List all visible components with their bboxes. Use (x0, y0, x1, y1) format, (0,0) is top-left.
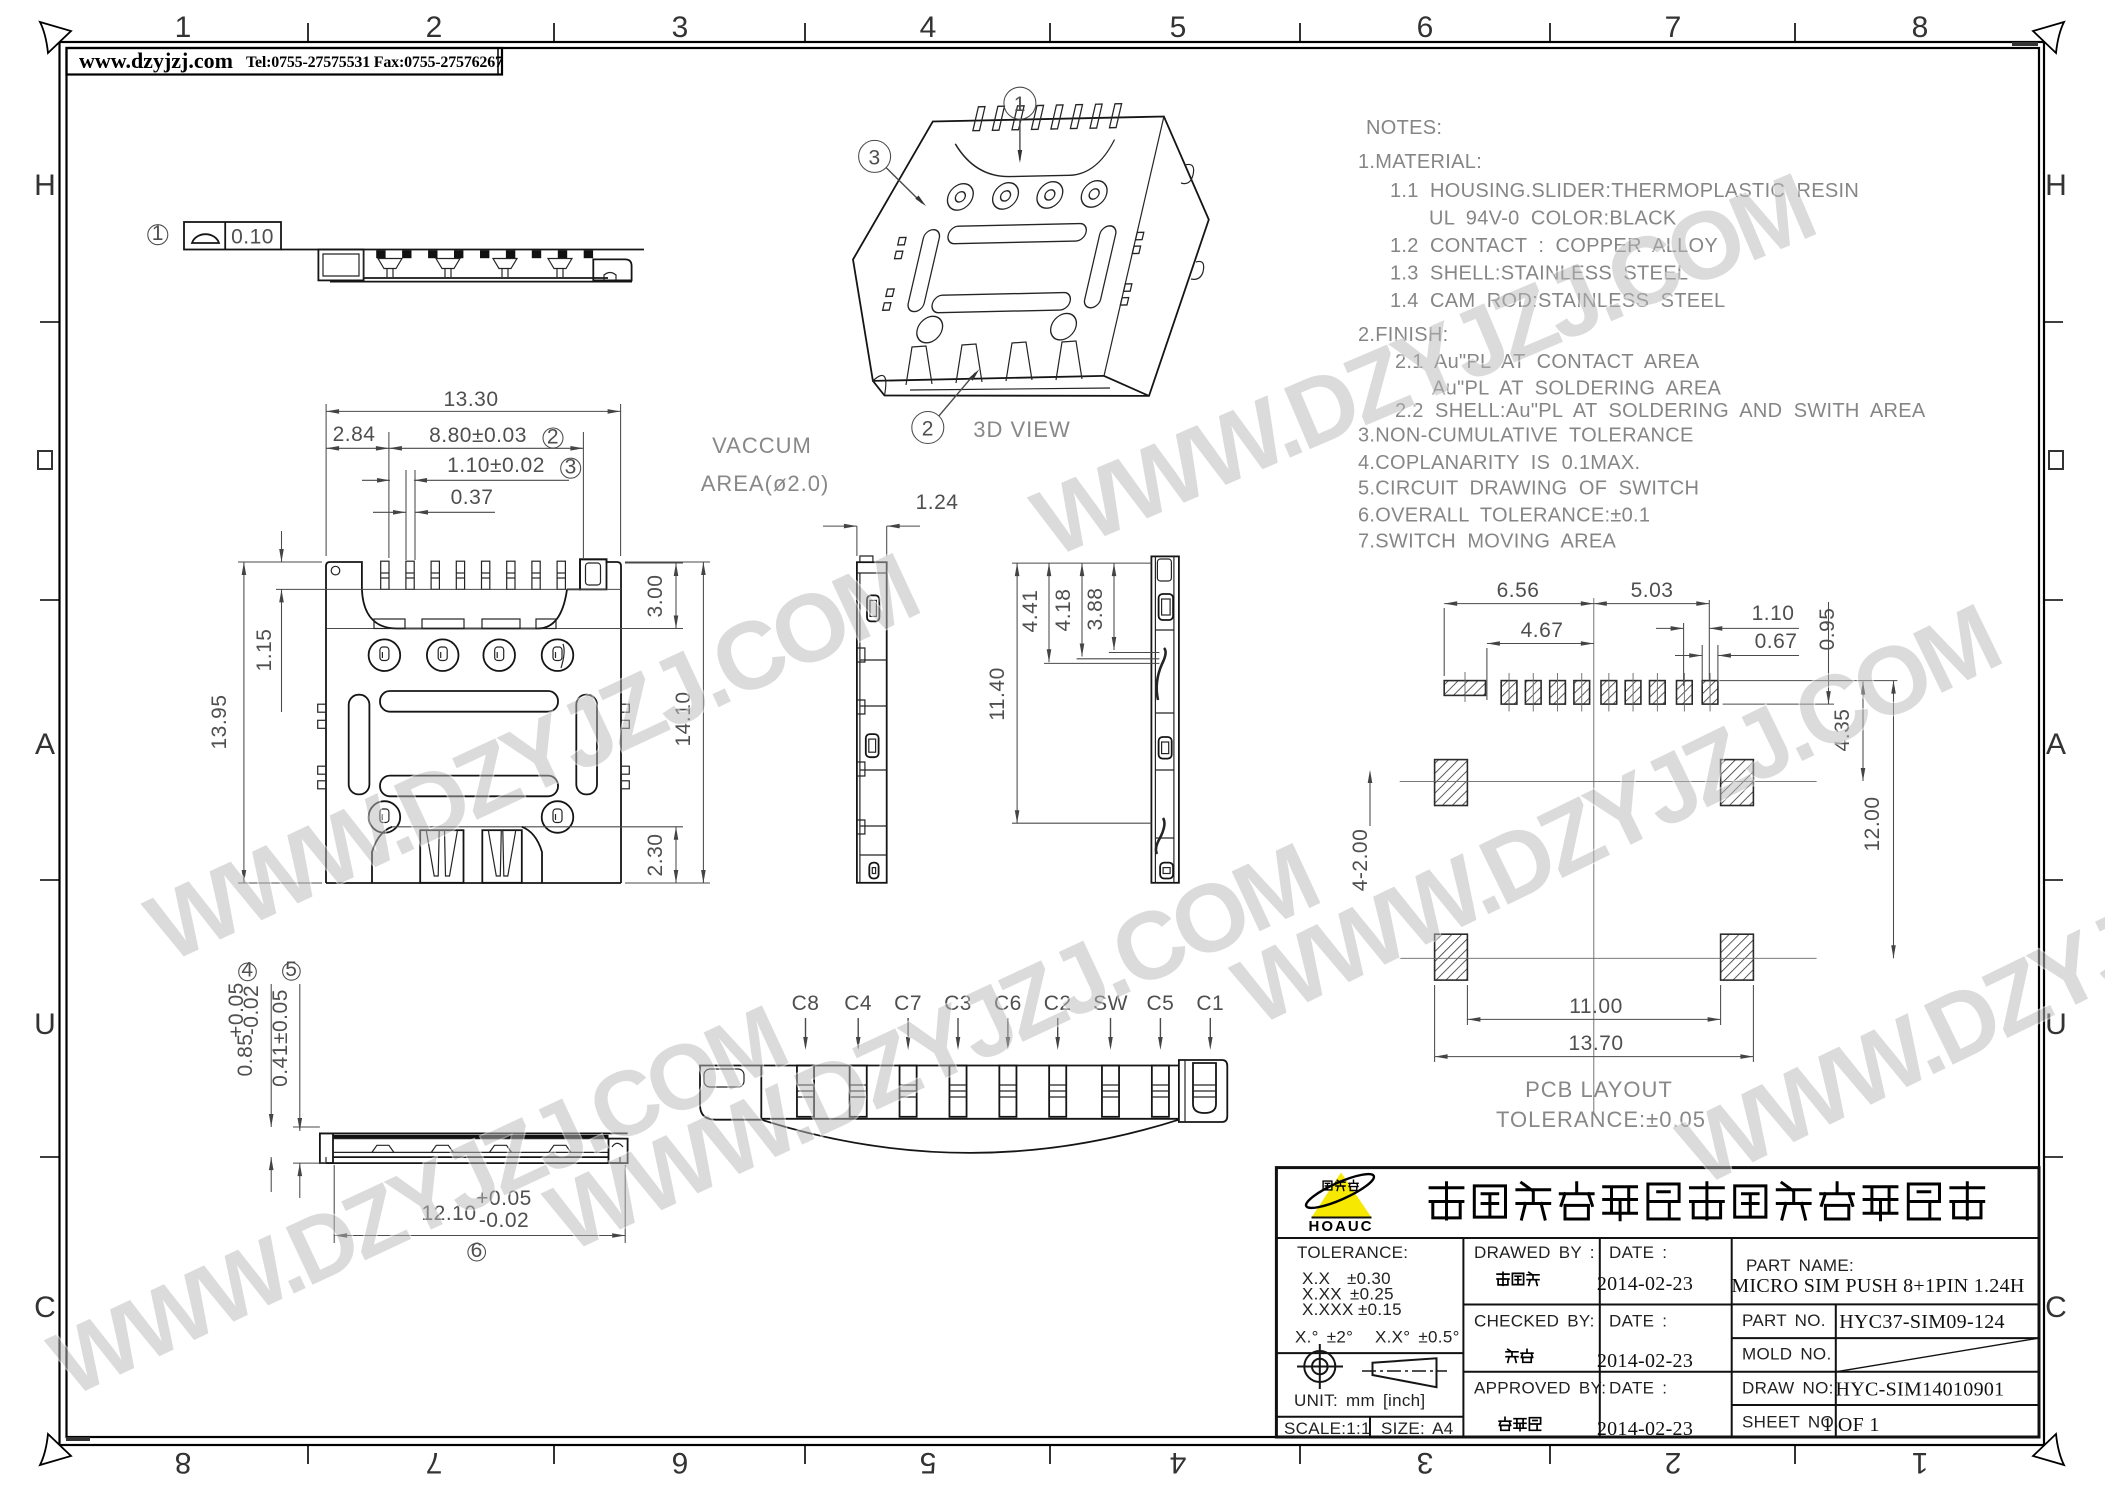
svg-text:MOLD NO.: MOLD NO. (1742, 1345, 1831, 1364)
svg-text:VACCUM: VACCUM (712, 433, 812, 458)
svg-text:0.10: 0.10 (231, 226, 274, 249)
svg-text:CHECKED BY:: CHECKED BY: (1474, 1312, 1595, 1331)
svg-text:1.10±0.02: 1.10±0.02 (447, 454, 545, 477)
svg-text:1.24: 1.24 (916, 491, 959, 514)
svg-text:4.67: 4.67 (1521, 619, 1564, 642)
svg-text:DRAWED BY :: DRAWED BY : (1474, 1243, 1595, 1262)
svg-text:5.03: 5.03 (1631, 579, 1674, 602)
svg-text:8: 8 (1912, 11, 1929, 44)
svg-text:2014-02-23: 2014-02-23 (1597, 1273, 1693, 1295)
svg-text:3: 3 (565, 456, 577, 479)
svg-text:0.41±0.05: 0.41±0.05 (269, 989, 292, 1087)
svg-text:HYC37-SIM09-124: HYC37-SIM09-124 (1839, 1311, 2005, 1333)
svg-text:UNIT: mm [inch]: UNIT: mm [inch] (1294, 1391, 1425, 1410)
svg-text:4.18: 4.18 (1052, 589, 1075, 632)
svg-text:H: H (2045, 169, 2067, 202)
svg-text:11.00: 11.00 (1569, 995, 1623, 1018)
svg-text:Tel:0755-27575531 Fax:0755-27: Tel:0755-27575531 Fax:0755-27576267 (246, 54, 503, 71)
svg-text:X.° ±2°: X.° ±2° (1295, 1328, 1353, 1347)
svg-text:1 OF 1: 1 OF 1 (1822, 1414, 1879, 1436)
svg-text:AREA(ø2.0): AREA(ø2.0) (701, 471, 830, 496)
svg-text:1.10: 1.10 (1752, 602, 1795, 625)
svg-text:3.88: 3.88 (1084, 588, 1107, 631)
svg-text:7: 7 (426, 1446, 443, 1479)
svg-text:C: C (2045, 1291, 2067, 1324)
svg-text:2014-02-23: 2014-02-23 (1597, 1418, 1693, 1440)
svg-text:PART NO.: PART NO. (1742, 1311, 1826, 1330)
svg-text:4: 4 (241, 959, 253, 982)
svg-text:5: 5 (1170, 11, 1187, 44)
svg-text:APPROVED BY:: APPROVED BY: (1474, 1379, 1606, 1398)
svg-text:4.41: 4.41 (1019, 590, 1042, 633)
svg-text:A: A (35, 728, 55, 761)
svg-text:A: A (2046, 728, 2066, 761)
svg-text:1.MATERIAL:: 1.MATERIAL: (1358, 151, 1482, 173)
svg-text:C1: C1 (1196, 992, 1224, 1015)
svg-text:6.56: 6.56 (1497, 579, 1540, 602)
svg-text:6.OVERALL TOLERANCE:±0.1: 6.OVERALL TOLERANCE:±0.1 (1358, 505, 1650, 527)
svg-text:2: 2 (922, 417, 934, 440)
svg-text:DATE :: DATE : (1609, 1379, 1667, 1398)
svg-text:1.15: 1.15 (253, 629, 276, 672)
svg-text:DATE :: DATE : (1609, 1312, 1667, 1331)
svg-text:SIZE: A4: SIZE: A4 (1381, 1419, 1454, 1438)
svg-text:5: 5 (920, 1446, 937, 1479)
svg-text:12.00: 12.00 (1861, 796, 1884, 851)
svg-text:X.XXX: X.XXX (1302, 1300, 1354, 1319)
svg-text:2.30: 2.30 (644, 834, 667, 877)
svg-text:HOAUC: HOAUC (1309, 1218, 1374, 1235)
svg-text:8: 8 (175, 1446, 192, 1479)
svg-text:0.67: 0.67 (1755, 630, 1798, 653)
svg-text:www.dzyjzj.com: www.dzyjzj.com (79, 48, 233, 73)
svg-text:NOTES:: NOTES: (1366, 117, 1442, 139)
svg-text:2014-02-23: 2014-02-23 (1597, 1350, 1693, 1372)
svg-text:6: 6 (471, 1239, 483, 1262)
svg-text:DRAW NO:: DRAW NO: (1742, 1379, 1834, 1398)
svg-text:1: 1 (152, 222, 164, 245)
svg-text:8.80±0.03: 8.80±0.03 (429, 424, 527, 447)
svg-text:±0.15: ±0.15 (1358, 1300, 1402, 1319)
svg-text:X.X° ±0.5°: X.X° ±0.5° (1375, 1328, 1460, 1347)
svg-text:-0.02: -0.02 (240, 985, 263, 1035)
svg-text:2: 2 (1665, 1446, 1682, 1479)
svg-text:1: 1 (175, 11, 192, 44)
svg-text:2: 2 (547, 425, 559, 448)
svg-text:2: 2 (426, 11, 443, 44)
svg-text:3D VIEW: 3D VIEW (973, 417, 1070, 442)
svg-text:7.SWITCH MOVING AREA: 7.SWITCH MOVING AREA (1358, 531, 1617, 553)
svg-text:3.00: 3.00 (644, 575, 667, 618)
svg-text:0.37: 0.37 (451, 486, 494, 509)
svg-text:5: 5 (285, 958, 297, 981)
svg-text:7: 7 (1665, 11, 1682, 44)
svg-text:C8: C8 (792, 992, 820, 1015)
svg-text:11.40: 11.40 (986, 667, 1009, 721)
svg-text:3: 3 (672, 11, 689, 44)
svg-text:MICRO SIM PUSH 8+1PIN 1.24H: MICRO SIM PUSH 8+1PIN 1.24H (1731, 1275, 2024, 1297)
svg-text:6: 6 (672, 1446, 689, 1479)
svg-text:PCB LAYOUT: PCB LAYOUT (1525, 1077, 1673, 1102)
svg-text:4: 4 (1170, 1446, 1187, 1479)
svg-text:13.70: 13.70 (1568, 1032, 1623, 1055)
svg-text:0.95: 0.95 (1816, 608, 1839, 651)
svg-text:H: H (34, 169, 56, 202)
svg-text:DATE :: DATE : (1609, 1243, 1667, 1262)
svg-text:4.COPLANARITY IS 0.1MAX.: 4.COPLANARITY IS 0.1MAX. (1358, 452, 1640, 474)
svg-text:5.CIRCUIT DRAWING OF SWITCH: 5.CIRCUIT DRAWING OF SWITCH (1358, 478, 1699, 500)
svg-text:U: U (34, 1008, 56, 1041)
svg-text:TOLERANCE:: TOLERANCE: (1297, 1243, 1408, 1262)
svg-text:1: 1 (1912, 1446, 1929, 1479)
svg-text:C4: C4 (844, 992, 872, 1015)
svg-text:2.2 SHELL:Au"PL AT SOLDERIN: 2.2 SHELL:Au"PL AT SOLDERING AND SWITH A… (1395, 400, 1926, 422)
svg-text:HYC-SIM14010901: HYC-SIM14010901 (1836, 1379, 2005, 1401)
svg-text:PART NAME:: PART NAME: (1746, 1256, 1854, 1275)
svg-text:1: 1 (1014, 93, 1026, 116)
svg-text:3: 3 (869, 146, 881, 169)
svg-text:13.95: 13.95 (208, 694, 231, 749)
svg-text:13.30: 13.30 (443, 388, 498, 411)
svg-text:4: 4 (920, 11, 937, 44)
svg-text:0.85: 0.85 (234, 1034, 257, 1077)
svg-text:SCALE:1:1: SCALE:1:1 (1284, 1419, 1371, 1438)
svg-text:6: 6 (1417, 11, 1434, 44)
svg-text:3: 3 (1417, 1446, 1434, 1479)
svg-text:2.84: 2.84 (333, 423, 376, 446)
